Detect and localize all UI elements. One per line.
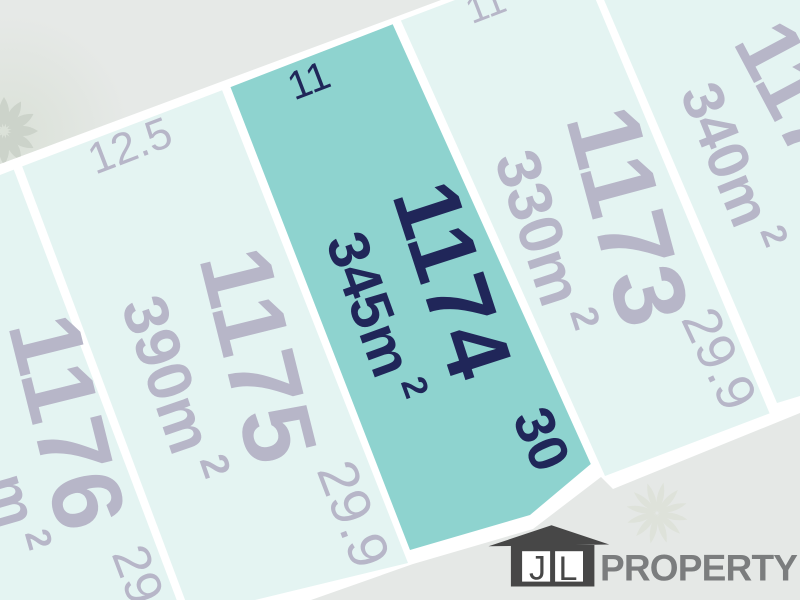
svg-text:PROPERTY: PROPERTY bbox=[600, 548, 798, 589]
svg-text:J: J bbox=[529, 550, 546, 588]
svg-text:L: L bbox=[559, 550, 578, 588]
